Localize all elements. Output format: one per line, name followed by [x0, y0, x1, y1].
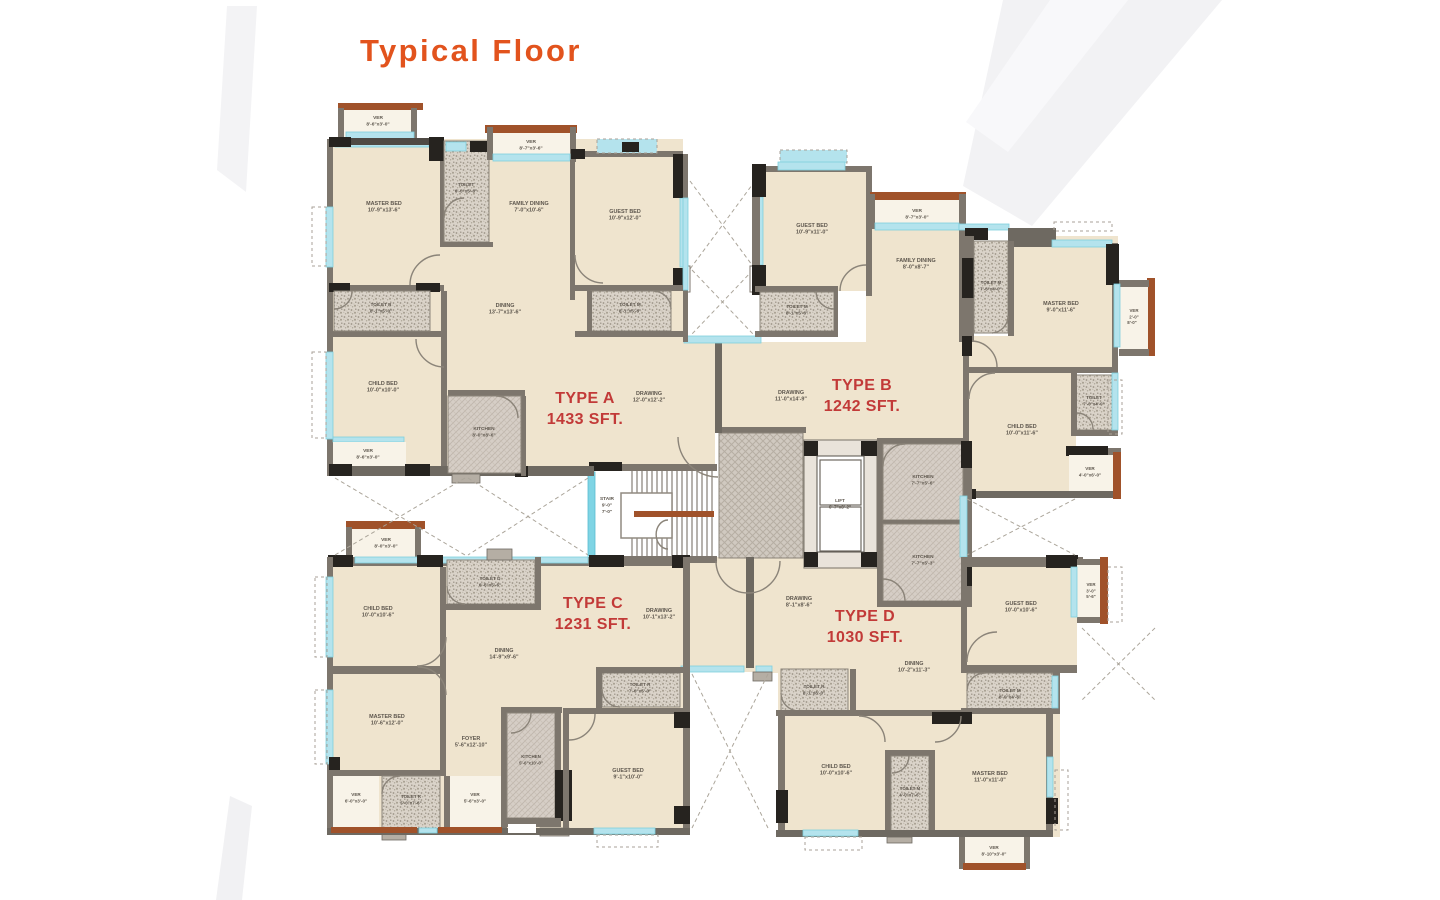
- svg-text:8'-0"x8'-6": 8'-0"x8'-6": [472, 433, 495, 439]
- svg-text:TOILET M: TOILET M: [619, 302, 641, 307]
- svg-text:1242 SFT.: 1242 SFT.: [824, 398, 901, 415]
- svg-text:5'-0"x7'-6": 5'-0"x7'-6": [400, 801, 421, 806]
- svg-text:GUEST BED: GUEST BED: [612, 768, 644, 774]
- svg-text:TOILET M: TOILET M: [786, 304, 808, 309]
- svg-text:GUEST BED: GUEST BED: [1005, 601, 1037, 607]
- svg-text:VER: VER: [363, 448, 373, 454]
- svg-text:9'-0": 9'-0": [602, 503, 612, 509]
- svg-text:10'-2"x11'-3": 10'-2"x11'-3": [898, 668, 930, 674]
- svg-text:10'-9"x12'-0": 10'-9"x12'-0": [609, 216, 642, 222]
- svg-text:DRAWING: DRAWING: [646, 608, 672, 614]
- svg-text:7'-6"x4'-0": 7'-6"x4'-0": [980, 287, 1001, 292]
- svg-text:8'-0"x3'-0": 8'-0"x3'-0": [374, 544, 397, 550]
- svg-text:KITCHEN: KITCHEN: [912, 474, 934, 480]
- svg-text:TYPE A: TYPE A: [555, 390, 615, 407]
- svg-text:FOYER: FOYER: [462, 736, 481, 742]
- svg-text:8'-10"x3'-0": 8'-10"x3'-0": [982, 852, 1007, 857]
- svg-text:4'-0"x6'-0": 4'-0"x6'-0": [1079, 473, 1101, 478]
- svg-text:8'-6"x3'-0": 8'-6"x3'-0": [366, 122, 389, 128]
- svg-text:12'-0"x12'-2": 12'-0"x12'-2": [633, 398, 666, 404]
- svg-text:8'-0"x4'-6": 8'-0"x4'-6": [999, 695, 1021, 700]
- svg-text:VER: VER: [381, 537, 391, 543]
- svg-text:7'-7"x5'-6": 7'-7"x5'-6": [911, 481, 934, 487]
- svg-text:7'-0"x5'-0": 7'-0"x5'-0": [629, 689, 651, 694]
- svg-text:8'-0"x8'-7": 8'-0"x8'-7": [903, 265, 930, 271]
- svg-text:VER: VER: [373, 115, 383, 121]
- svg-text:MASTER BED: MASTER BED: [366, 201, 402, 207]
- svg-text:7'-0"x10'-6": 7'-0"x10'-6": [514, 208, 544, 214]
- svg-text:10'-0"x10'-6": 10'-0"x10'-6": [362, 613, 395, 619]
- svg-text:TOILET R: TOILET R: [401, 794, 422, 799]
- svg-text:FAMILY DINING: FAMILY DINING: [896, 258, 936, 264]
- svg-text:TOILET M: TOILET M: [999, 688, 1021, 693]
- svg-text:6'-0"x3'-0": 6'-0"x3'-0": [345, 799, 367, 804]
- svg-text:10'-9"x11'-0": 10'-9"x11'-0": [796, 230, 828, 236]
- svg-text:DINING: DINING: [496, 303, 515, 309]
- svg-text:5'-6"x12'-10": 5'-6"x12'-10": [455, 743, 488, 749]
- svg-text:10'-0"x10'-6": 10'-0"x10'-6": [820, 771, 853, 777]
- svg-text:TOILET D: TOILET D: [480, 576, 502, 581]
- svg-text:TOILET R: TOILET R: [371, 302, 393, 307]
- svg-text:9'-0"x11'-6": 9'-0"x11'-6": [1047, 308, 1076, 314]
- svg-text:6'-0"x5'-6": 6'-0"x5'-6": [455, 189, 477, 194]
- svg-text:6'-6"x5'-6": 6'-6"x5'-6": [479, 583, 501, 588]
- svg-text:7'-7"x5'-3": 7'-7"x5'-3": [911, 561, 934, 567]
- svg-text:VER: VER: [351, 792, 361, 797]
- svg-text:11'-0"x14'-9": 11'-0"x14'-9": [775, 397, 807, 403]
- svg-text:5'-6"x10'-0": 5'-6"x10'-0": [519, 761, 543, 766]
- svg-text:8'-1"x5'-0": 8'-1"x5'-0": [370, 309, 392, 314]
- svg-text:11'-0"x11'-0": 11'-0"x11'-0": [974, 778, 1006, 784]
- svg-text:8'-1"x8'-0": 8'-1"x8'-0": [803, 691, 825, 696]
- svg-text:TOILET M: TOILET M: [900, 786, 921, 791]
- svg-text:10'-0"x11'-6": 10'-0"x11'-6": [1006, 431, 1038, 437]
- svg-text:VER: VER: [1086, 582, 1096, 587]
- svg-text:VER: VER: [912, 208, 922, 214]
- svg-text:DRAWING: DRAWING: [636, 391, 662, 397]
- svg-text:TOILET M: TOILET M: [981, 280, 1002, 285]
- svg-text:DRAWING: DRAWING: [786, 596, 812, 602]
- svg-text:MASTER BED: MASTER BED: [369, 714, 405, 720]
- svg-text:5'-6"x3'-0": 5'-6"x3'-0": [464, 799, 486, 804]
- svg-text:CHILD BED: CHILD BED: [363, 606, 392, 612]
- svg-text:9'-1"x10'-0": 9'-1"x10'-0": [613, 775, 643, 781]
- svg-text:VER: VER: [470, 792, 480, 797]
- svg-text:10'-0"x10'-6": 10'-0"x10'-6": [1005, 608, 1038, 614]
- svg-text:TOILET: TOILET: [458, 182, 474, 187]
- svg-text:TYPE B: TYPE B: [832, 377, 892, 394]
- svg-text:TOILET: TOILET: [1086, 395, 1102, 400]
- svg-text:TOILET R: TOILET R: [630, 682, 652, 687]
- svg-text:10'-0"x10'-0": 10'-0"x10'-0": [367, 388, 400, 394]
- svg-text:8'-1"x8'-6": 8'-1"x8'-6": [786, 603, 813, 609]
- svg-text:8'-6"x3'-0": 8'-6"x3'-0": [356, 455, 379, 461]
- svg-text:8'-0": 8'-0": [1127, 320, 1136, 325]
- svg-text:DINING: DINING: [905, 661, 924, 667]
- svg-text:7'-0"x4'-0": 7'-0"x4'-0": [1083, 402, 1104, 407]
- svg-text:1231 SFT.: 1231 SFT.: [555, 616, 632, 633]
- svg-text:STAIR: STAIR: [600, 496, 615, 502]
- svg-text:GUEST BED: GUEST BED: [609, 209, 641, 215]
- svg-text:CHILD BED: CHILD BED: [368, 381, 397, 387]
- svg-text:MASTER BED: MASTER BED: [1043, 301, 1079, 307]
- svg-text:10'-9"x13'-6": 10'-9"x13'-6": [368, 208, 401, 214]
- svg-text:KITCHEN: KITCHEN: [521, 754, 541, 759]
- svg-text:LIFT: LIFT: [835, 498, 845, 503]
- svg-text:FAMILY DINING: FAMILY DINING: [509, 201, 549, 207]
- svg-text:4'-0"x7'-6": 4'-0"x7'-6": [899, 793, 920, 798]
- svg-text:VER: VER: [1085, 466, 1095, 471]
- svg-text:MASTER BED: MASTER BED: [972, 771, 1008, 777]
- svg-text:8'-1"x5'-6": 8'-1"x5'-6": [619, 309, 641, 314]
- svg-text:8'-7"x3'-6": 8'-7"x3'-6": [519, 146, 542, 152]
- svg-text:CHILD BED: CHILD BED: [821, 764, 850, 770]
- svg-text:VER: VER: [989, 845, 999, 850]
- svg-text:1433 SFT.: 1433 SFT.: [547, 411, 624, 428]
- svg-text:VER: VER: [1129, 308, 1139, 313]
- svg-text:5'-6": 5'-6": [1086, 594, 1095, 599]
- svg-text:TYPE D: TYPE D: [835, 608, 895, 625]
- svg-text:TYPE C: TYPE C: [563, 595, 623, 612]
- svg-text:8'-1"x5'-6": 8'-1"x5'-6": [786, 311, 808, 316]
- svg-text:KITCHEN: KITCHEN: [473, 426, 495, 432]
- svg-text:KITCHEN: KITCHEN: [912, 554, 934, 560]
- svg-text:DINING: DINING: [495, 648, 514, 654]
- svg-text:Typical Floor: Typical Floor: [360, 33, 582, 68]
- svg-text:TOILET R: TOILET R: [804, 684, 826, 689]
- svg-text:DRAWING: DRAWING: [778, 390, 804, 396]
- svg-text:2'-0": 2'-0": [1129, 315, 1138, 320]
- svg-text:7'-0": 7'-0": [602, 509, 612, 515]
- svg-text:GUEST BED: GUEST BED: [796, 223, 828, 229]
- svg-text:10'-1"x13'-2": 10'-1"x13'-2": [643, 615, 676, 621]
- svg-text:6'-7"x8'-2": 6'-7"x8'-2": [829, 505, 851, 510]
- svg-text:8'-7"x3'-0": 8'-7"x3'-0": [905, 215, 928, 221]
- svg-text:13'-7"x13'-6": 13'-7"x13'-6": [489, 310, 522, 316]
- svg-text:VER: VER: [526, 139, 536, 145]
- svg-text:1030 SFT.: 1030 SFT.: [827, 629, 904, 646]
- svg-text:10'-6"x12'-0": 10'-6"x12'-0": [371, 721, 404, 727]
- svg-text:14'-9"x9'-6": 14'-9"x9'-6": [489, 655, 519, 661]
- svg-text:3'-0": 3'-0": [1086, 589, 1095, 594]
- svg-text:CHILD BED: CHILD BED: [1007, 424, 1036, 430]
